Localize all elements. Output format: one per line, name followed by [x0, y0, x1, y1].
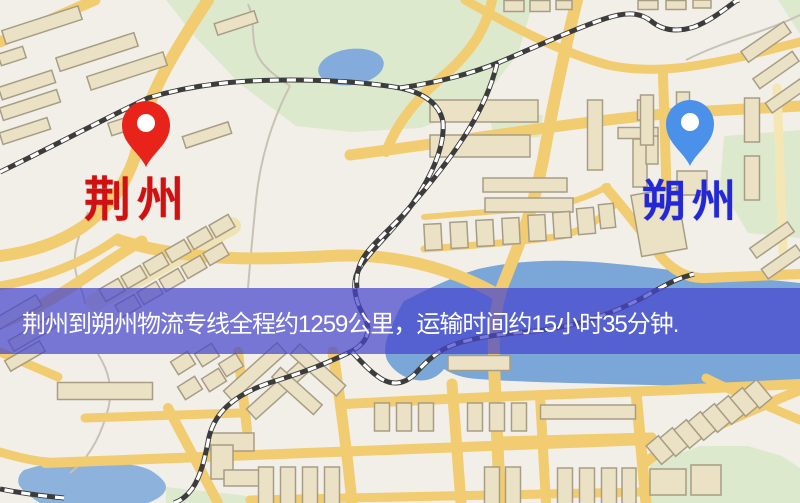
- building: [485, 198, 573, 212]
- building: [325, 467, 340, 503]
- building: [530, 1, 550, 12]
- building: [622, 468, 636, 503]
- building: [468, 403, 483, 431]
- building: [281, 467, 296, 503]
- building: [553, 211, 572, 238]
- building: [528, 215, 546, 242]
- building: [588, 100, 603, 170]
- map-view[interactable]: 荆州 朔州 荆州到朔州物流专线全程约1259公里，运输时间约15小时35分钟.: [0, 0, 800, 503]
- building: [506, 467, 521, 503]
- map-graphic: [0, 0, 800, 503]
- building: [424, 224, 442, 251]
- building: [602, 468, 617, 503]
- destination-city-label: 朔州: [642, 180, 742, 224]
- building: [483, 178, 567, 192]
- building: [430, 135, 530, 157]
- building: [512, 403, 527, 431]
- building: [745, 156, 760, 200]
- building: [638, 1, 658, 10]
- building: [490, 403, 505, 431]
- building: [504, 1, 524, 12]
- building: [450, 222, 468, 249]
- building: [259, 467, 274, 503]
- origin-city-label: 荆州: [84, 176, 190, 223]
- building: [576, 207, 595, 234]
- building: [58, 383, 153, 400]
- building: [485, 467, 500, 503]
- building: [556, 1, 572, 10]
- building: [580, 468, 595, 503]
- building: [691, 465, 721, 495]
- building: [541, 405, 636, 419]
- building: [448, 356, 510, 371]
- building: [502, 218, 520, 245]
- building: [397, 403, 412, 431]
- building: [641, 95, 654, 145]
- building: [693, 0, 711, 8]
- building: [745, 98, 760, 142]
- building: [476, 220, 494, 247]
- building: [558, 468, 573, 503]
- building: [598, 203, 615, 228]
- route-info-banner: 荆州到朔州物流专线全程约1259公里，运输时间约15小时35分钟.: [0, 288, 800, 354]
- building: [375, 403, 390, 431]
- building: [419, 403, 434, 431]
- building: [666, 1, 686, 10]
- route-info-text: 荆州到朔州物流专线全程约1259公里，运输时间约15小时35分钟.: [22, 304, 678, 339]
- building: [650, 469, 686, 495]
- building: [303, 467, 318, 503]
